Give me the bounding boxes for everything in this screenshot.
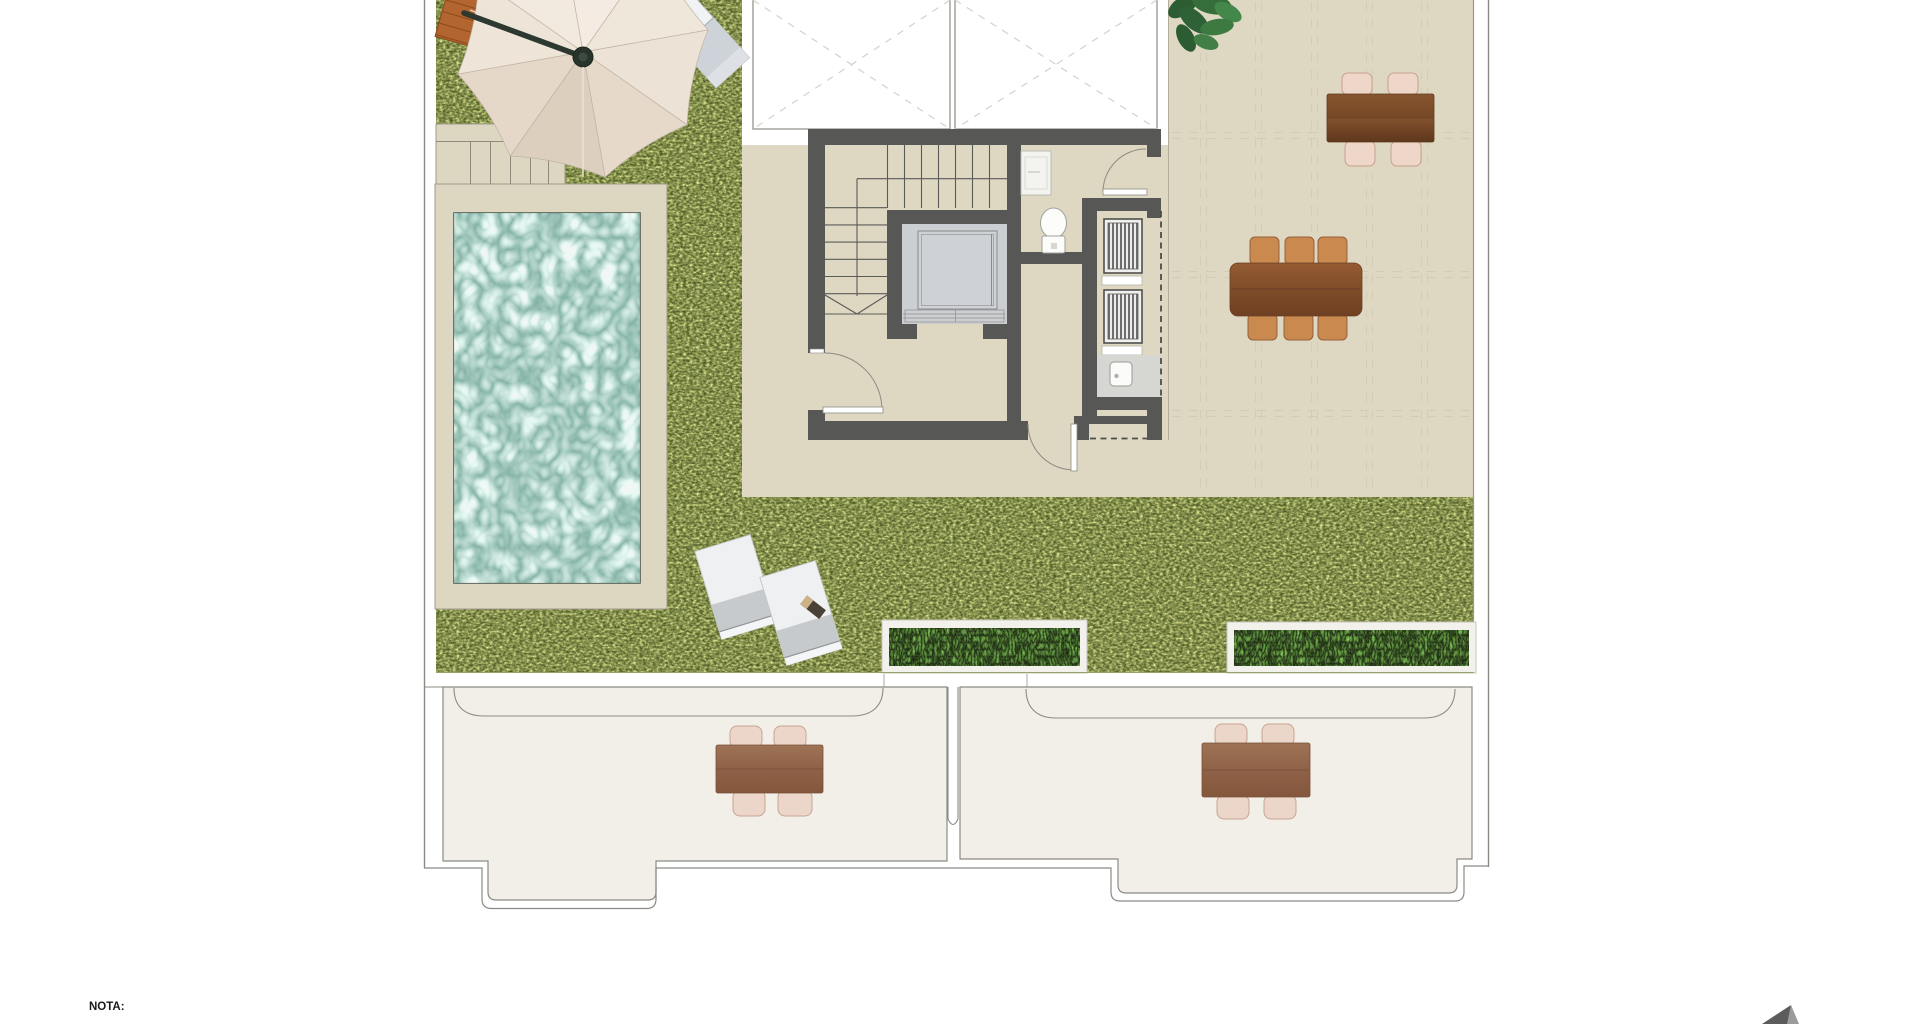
- svg-text:NOTA:: NOTA:: [89, 1001, 125, 1013]
